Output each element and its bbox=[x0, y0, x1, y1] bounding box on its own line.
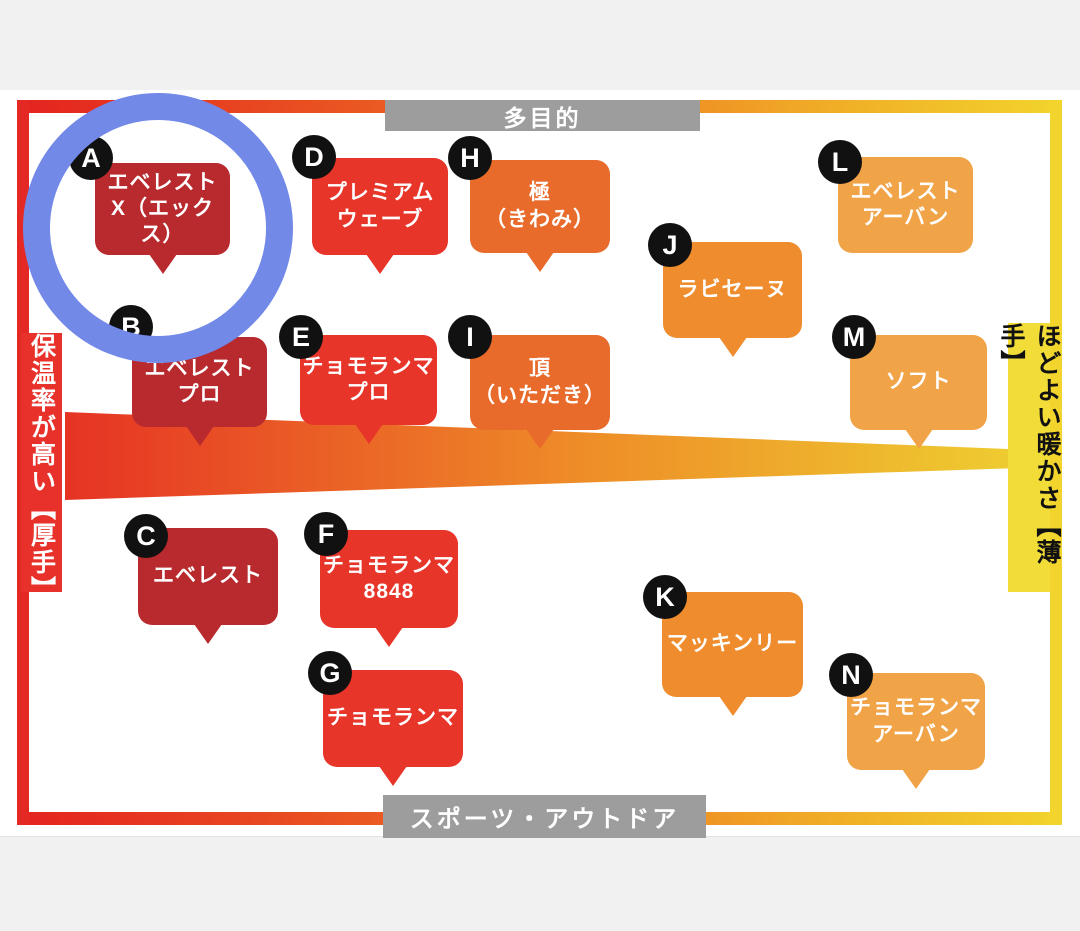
product-badge-H: H bbox=[448, 136, 492, 180]
product-name: チョモランマ bbox=[327, 705, 459, 731]
product-badge-F: F bbox=[304, 512, 348, 556]
product-name: ラビセーヌ bbox=[678, 277, 788, 303]
bubble-tail bbox=[905, 429, 933, 449]
axis-label-right: ほどよい暖かさ【薄手】 bbox=[1008, 323, 1050, 592]
bubble-tail bbox=[355, 424, 383, 444]
product-name: 極（きわみ） bbox=[485, 180, 595, 233]
product-badge-L: L bbox=[818, 140, 862, 184]
product-name: チョモランマ8848 bbox=[323, 553, 455, 606]
bubble-tail bbox=[186, 426, 214, 446]
product-badge-K: K bbox=[643, 575, 687, 619]
highlight-circle bbox=[23, 93, 293, 363]
axis-label-left: 保温率が高い【厚手】 bbox=[21, 333, 62, 592]
category-label-top: 多目的 bbox=[385, 100, 700, 131]
bubble-tail bbox=[379, 766, 407, 786]
product-name: プレミアムウェーブ bbox=[326, 180, 435, 233]
warmth-positioning-map: 多目的 スポーツ・アウトドア 保温率が高い【厚手】 ほどよい暖かさ【薄手】 エベ… bbox=[0, 0, 1080, 931]
product-badge-N: N bbox=[829, 653, 873, 697]
product-badge-D: D bbox=[292, 135, 336, 179]
product-name: ソフト bbox=[886, 369, 952, 395]
bubble-tail bbox=[719, 337, 747, 357]
bubble-tail bbox=[366, 254, 394, 274]
product-bubble-D: プレミアムウェーブ bbox=[312, 158, 448, 255]
product-name: 頂（いただき） bbox=[474, 356, 606, 409]
page-margin-bottom bbox=[0, 836, 1080, 931]
bubble-tail bbox=[719, 696, 747, 716]
axis-label-left-text: 保温率が高い【厚手】 bbox=[24, 333, 60, 592]
category-label-bottom-text: スポーツ・アウトドア bbox=[410, 799, 680, 834]
bubble-tail bbox=[526, 252, 554, 272]
product-name: チョモランマプロ bbox=[303, 354, 435, 407]
product-bubble-E: チョモランマプロ bbox=[300, 335, 437, 425]
product-badge-J: J bbox=[648, 223, 692, 267]
category-label-top-text: 多目的 bbox=[504, 99, 582, 133]
page-margin-top bbox=[0, 0, 1080, 90]
axis-label-right-text: ほどよい暖かさ【薄手】 bbox=[993, 323, 1065, 592]
product-name: マッキンリー bbox=[667, 631, 798, 657]
product-bubble-I: 頂（いただき） bbox=[470, 335, 610, 430]
category-label-bottom: スポーツ・アウトドア bbox=[383, 795, 706, 838]
product-name: エベレスト bbox=[153, 563, 263, 589]
product-badge-G: G bbox=[308, 651, 352, 695]
product-badge-I: I bbox=[448, 315, 492, 359]
bubble-tail bbox=[902, 769, 930, 789]
product-badge-C: C bbox=[124, 514, 168, 558]
product-name: エベレストプロ bbox=[145, 356, 255, 409]
bubble-tail bbox=[375, 627, 403, 647]
bubble-tail bbox=[526, 429, 554, 449]
bubble-tail bbox=[194, 624, 222, 644]
product-name: エベレストアーバン bbox=[851, 179, 961, 232]
product-name: チョモランマアーバン bbox=[850, 695, 982, 748]
product-badge-M: M bbox=[832, 315, 876, 359]
product-bubble-H: 極（きわみ） bbox=[470, 160, 610, 253]
product-badge-E: E bbox=[279, 315, 323, 359]
